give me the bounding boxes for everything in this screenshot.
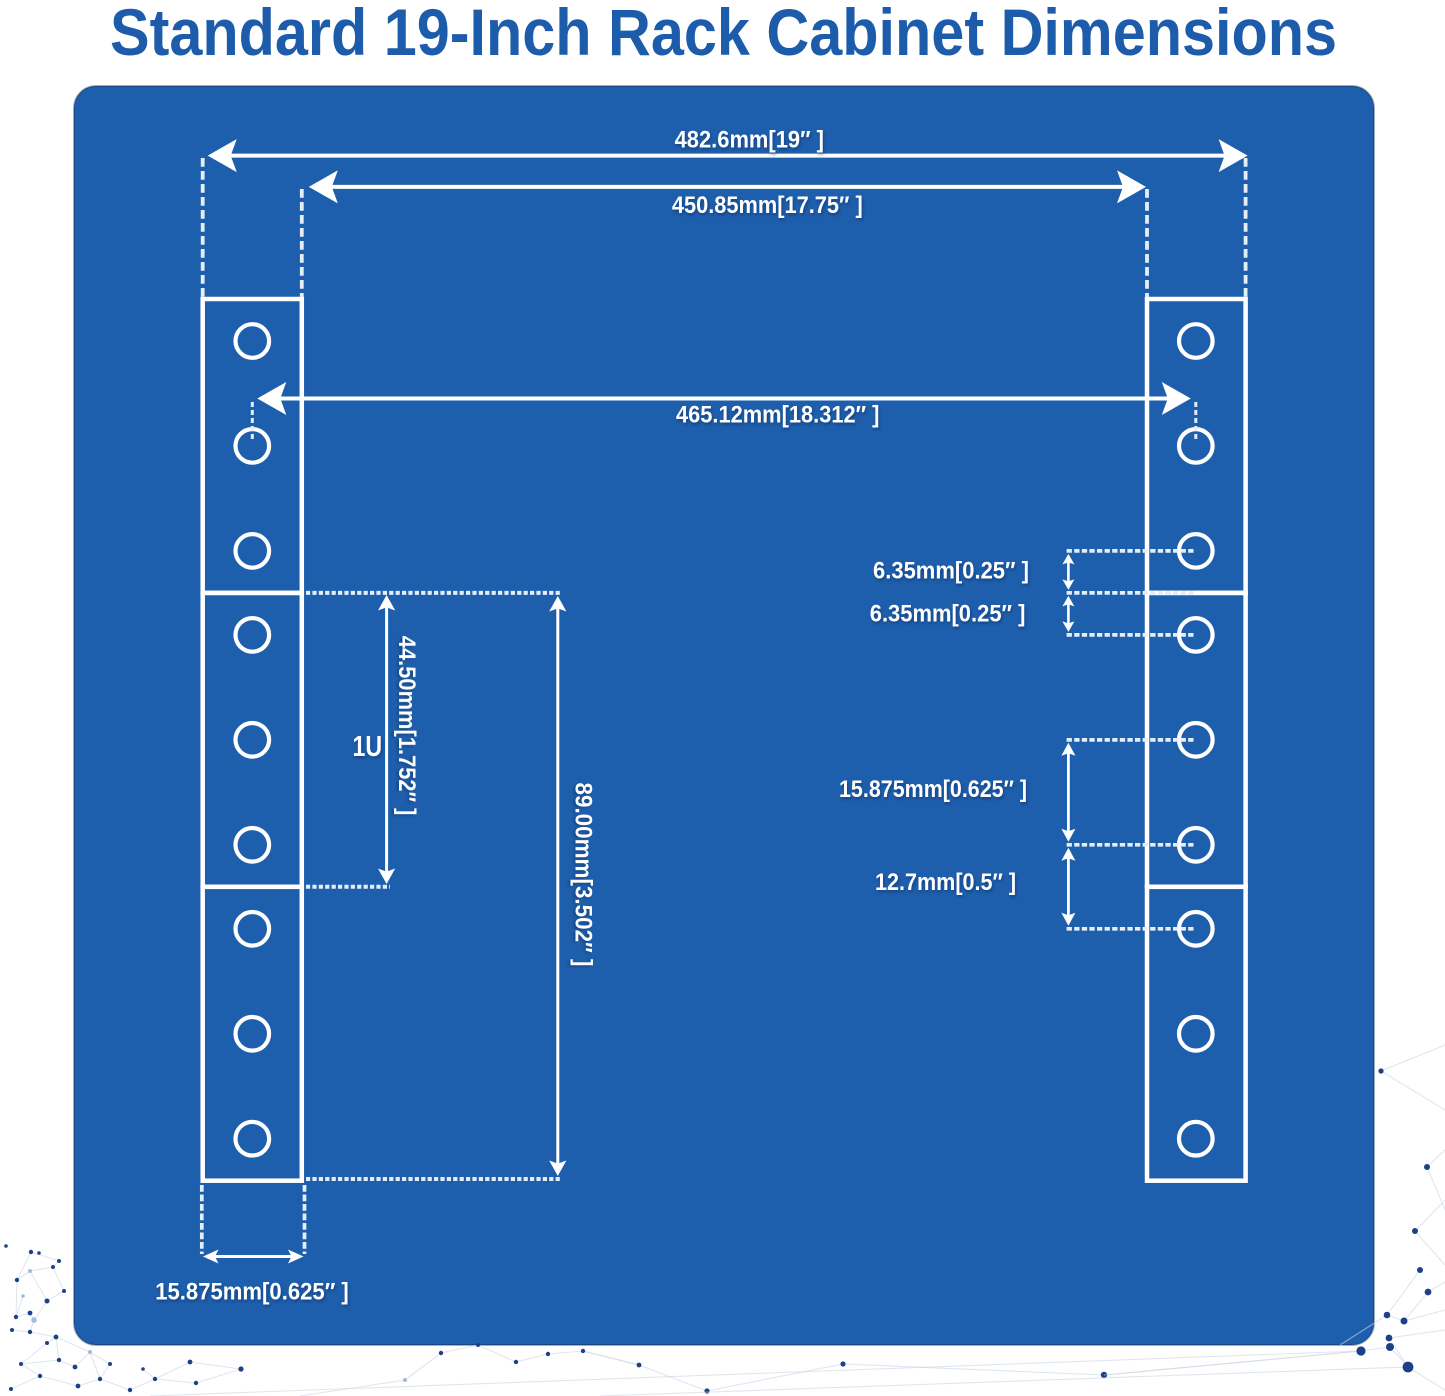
svg-text:44.50mm[1.752″ ]: 44.50mm[1.752″ ]	[393, 636, 420, 816]
svg-text:89.00mm[3.502″ ]: 89.00mm[3.502″ ]	[569, 783, 596, 967]
svg-text:Standard 19-Inch Rack Cabinet: Standard 19-Inch Rack Cabinet Dimensions	[110, 0, 1337, 69]
svg-text:15.875mm[0.625″ ]: 15.875mm[0.625″ ]	[839, 776, 1027, 803]
svg-text:6.35mm[0.25″ ]: 6.35mm[0.25″ ]	[870, 600, 1026, 627]
svg-text:6.35mm[0.25″ ]: 6.35mm[0.25″ ]	[873, 557, 1029, 584]
svg-text:1U: 1U	[353, 731, 383, 763]
svg-text:15.875mm[0.625″ ]: 15.875mm[0.625″ ]	[155, 1278, 349, 1305]
svg-text:450.85mm[17.75″ ]: 450.85mm[17.75″ ]	[672, 192, 863, 219]
svg-text:12.7mm[0.5″ ]: 12.7mm[0.5″ ]	[875, 869, 1016, 896]
svg-text:465.12mm[18.312″ ]: 465.12mm[18.312″ ]	[676, 401, 880, 428]
svg-text:482.6mm[19″ ]: 482.6mm[19″ ]	[675, 127, 824, 154]
